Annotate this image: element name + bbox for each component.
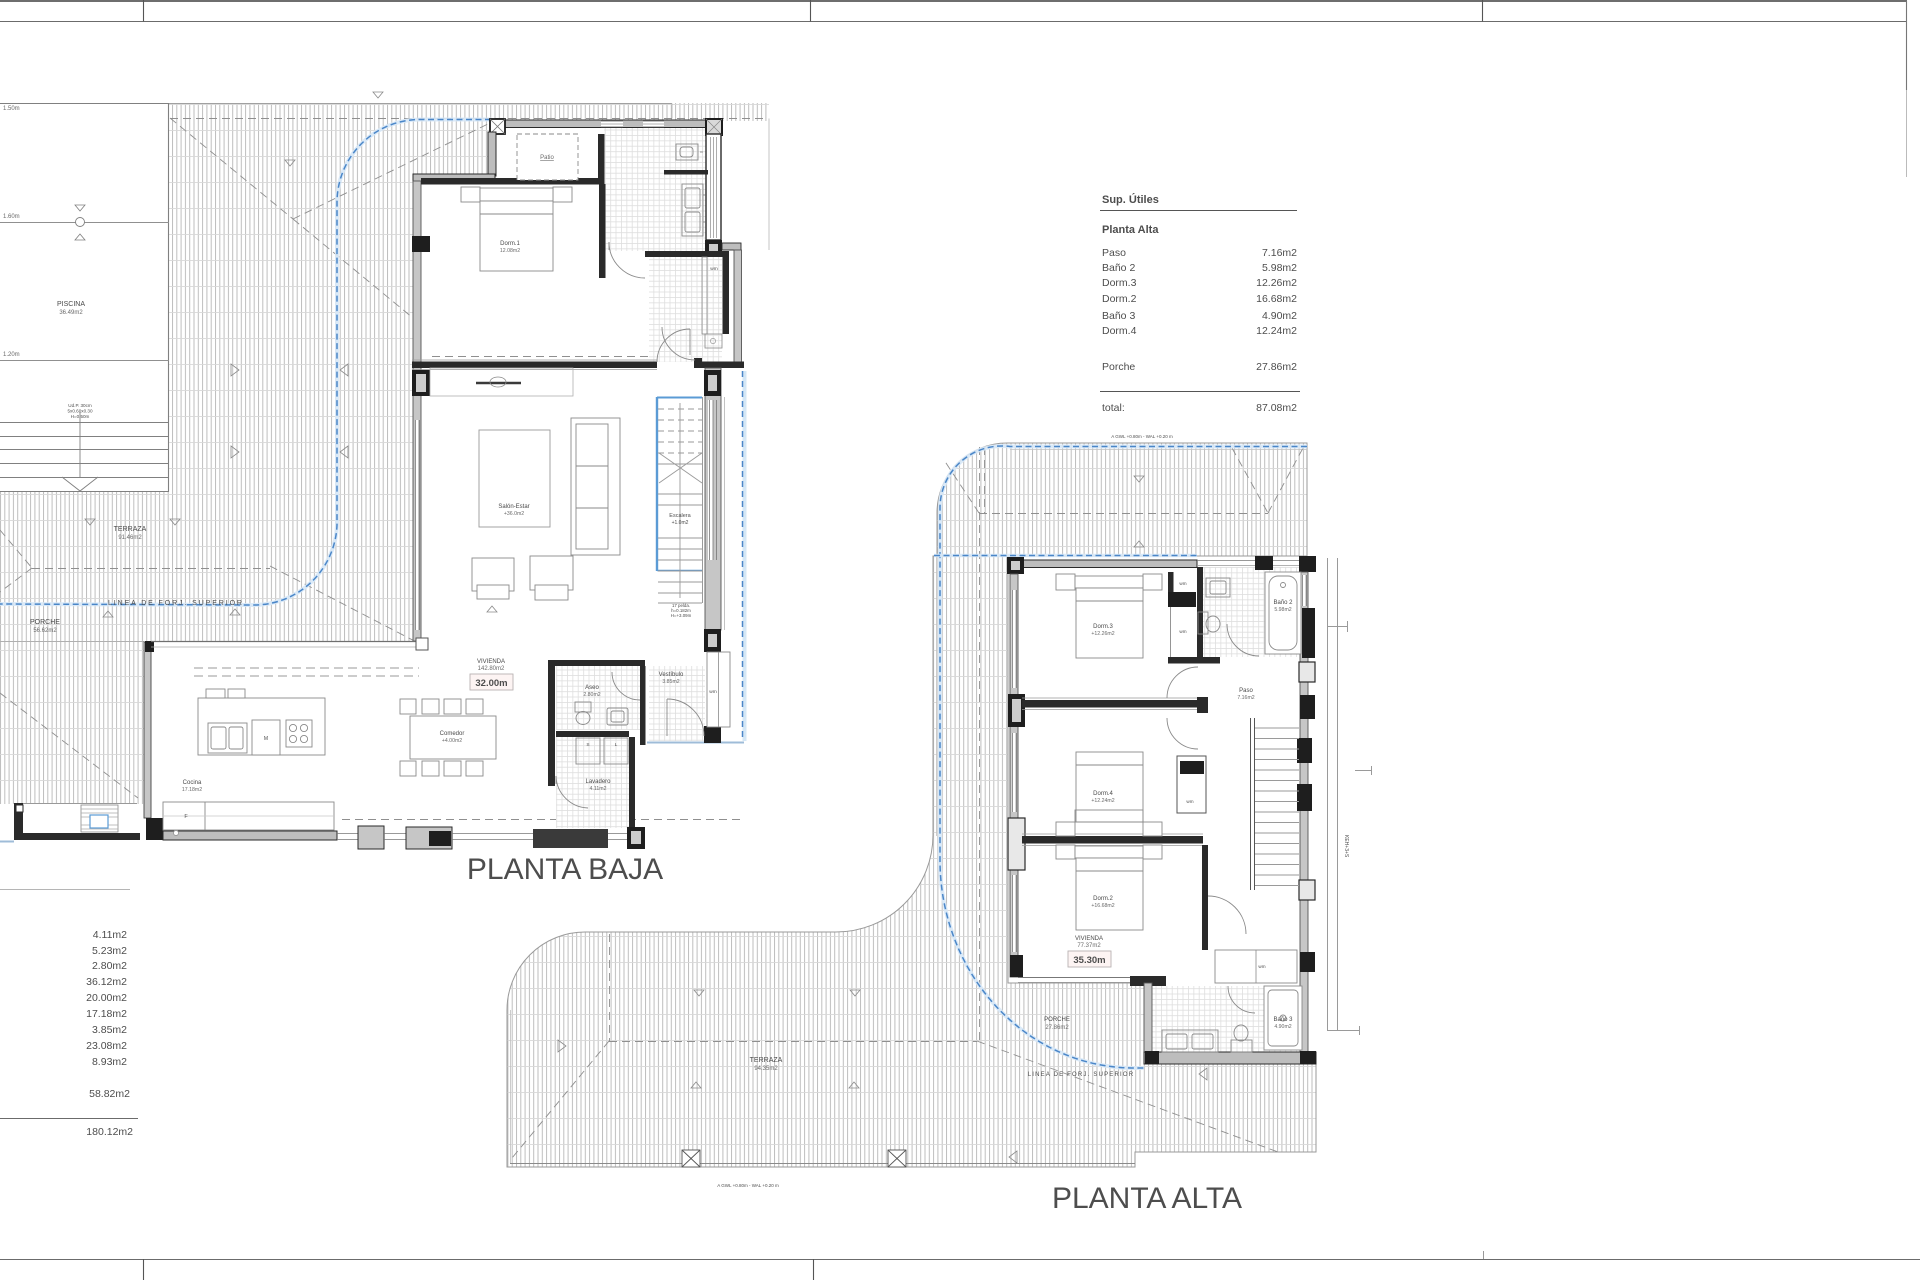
svg-text:17.18m2: 17.18m2 <box>182 787 202 793</box>
svg-text:+4.00m2: +4.00m2 <box>442 738 462 744</box>
svg-text:27.86m2: 27.86m2 <box>1256 361 1297 373</box>
svg-text:+12.26m2: +12.26m2 <box>1091 631 1114 637</box>
svg-text:12.26m2: 12.26m2 <box>1256 277 1297 289</box>
svg-text:3.85m2: 3.85m2 <box>662 679 679 685</box>
svg-text:1.60m: 1.60m <box>3 214 20 220</box>
svg-text:5x0.60x0.30: 5x0.60x0.30 <box>67 409 92 414</box>
svg-text:wm: wm <box>1179 581 1186 586</box>
svg-text:Dorm.3: Dorm.3 <box>1102 277 1137 289</box>
svg-text:35.30m: 35.30m <box>1073 955 1105 966</box>
svg-text:180.12m2: 180.12m2 <box>86 1126 133 1138</box>
svg-text:Lavadero: Lavadero <box>585 779 611 785</box>
svg-text:17.18m2: 17.18m2 <box>86 1008 127 1020</box>
svg-text:VIVIENDA: VIVIENDA <box>477 659 505 665</box>
svg-text:Dorm.4: Dorm.4 <box>1102 325 1137 337</box>
svg-text:Dorm.2: Dorm.2 <box>1102 293 1137 305</box>
svg-text:H=+3.09m: H=+3.09m <box>671 613 692 618</box>
svg-text:PISCINA: PISCINA <box>57 301 85 308</box>
svg-text:Sup. Útiles: Sup. Útiles <box>1102 193 1159 206</box>
svg-text:4.90m2: 4.90m2 <box>1262 310 1297 322</box>
svg-text:77.37m2: 77.37m2 <box>1077 943 1101 949</box>
svg-text:Baño 2: Baño 2 <box>1102 262 1135 274</box>
svg-text:wm: wm <box>710 267 717 272</box>
svg-text:20.00m2: 20.00m2 <box>86 992 127 1004</box>
svg-text:Cocina: Cocina <box>183 780 202 786</box>
svg-text:94.35m2: 94.35m2 <box>754 1066 778 1072</box>
svg-text:A GWL +0.80m - WAL +0.20 m: A GWL +0.80m - WAL +0.20 m <box>717 1183 779 1188</box>
svg-text:7.16m2: 7.16m2 <box>1262 247 1297 259</box>
svg-text:36.12m2: 36.12m2 <box>86 976 127 988</box>
svg-text:Dorm.3: Dorm.3 <box>1093 624 1113 630</box>
svg-text:7.16m2: 7.16m2 <box>1237 695 1254 701</box>
svg-text:wm: wm <box>709 690 716 695</box>
svg-text:Patio: Patio <box>540 155 554 161</box>
svg-text:Baño 3: Baño 3 <box>1102 310 1135 322</box>
svg-text:LINEA DE FORJ. SUPERIOR: LINEA DE FORJ. SUPERIOR <box>108 600 244 607</box>
svg-text:VIVIENDA: VIVIENDA <box>1075 936 1103 942</box>
svg-text:5.98m2: 5.98m2 <box>1274 607 1291 613</box>
svg-text:Paso: Paso <box>1239 688 1253 694</box>
svg-text:Planta Alta: Planta Alta <box>1102 224 1159 236</box>
svg-text:1.50m: 1.50m <box>3 106 20 112</box>
svg-text:Vestíbulo: Vestíbulo <box>659 672 684 678</box>
svg-text:8.93m2: 8.93m2 <box>92 1056 127 1068</box>
svg-text:Comedor: Comedor <box>440 731 465 737</box>
svg-text:36.49m2: 36.49m2 <box>59 310 83 316</box>
svg-text:S: S <box>586 742 589 748</box>
svg-text:32.00m: 32.00m <box>475 678 507 689</box>
svg-text:Dorm.2: Dorm.2 <box>1093 896 1113 902</box>
svg-text:A GWL +0.80m - WAL +0.20 m: A GWL +0.80m - WAL +0.20 m <box>1111 434 1173 439</box>
svg-text:PLANTA ALTA: PLANTA ALTA <box>1052 1182 1242 1215</box>
svg-text:Escalera: Escalera <box>669 513 691 519</box>
svg-text:+36.0m2: +36.0m2 <box>504 511 524 517</box>
svg-text:2.80m2: 2.80m2 <box>92 960 127 972</box>
svg-text:TERRAZA: TERRAZA <box>114 526 147 533</box>
svg-text:+12.24m2: +12.24m2 <box>1091 798 1114 804</box>
svg-text:12.24m2: 12.24m2 <box>1256 325 1297 337</box>
svg-text:87.08m2: 87.08m2 <box>1256 402 1297 414</box>
svg-text:LINEA DE FORJ. SUPERIOR: LINEA DE FORJ. SUPERIOR <box>1028 1072 1135 1078</box>
svg-text:1.20m: 1.20m <box>3 352 20 358</box>
svg-text:PORCHE: PORCHE <box>30 619 60 626</box>
svg-text:12.08m2: 12.08m2 <box>500 248 520 254</box>
svg-text:56.62m2: 56.62m2 <box>33 628 57 634</box>
svg-text:142.80m2: 142.80m2 <box>478 666 505 672</box>
svg-text:4.11m2: 4.11m2 <box>590 786 607 792</box>
svg-text:Aseo: Aseo <box>585 685 599 691</box>
svg-text:58.82m2: 58.82m2 <box>89 1088 130 1100</box>
svg-text:91.46m2: 91.46m2 <box>118 535 142 541</box>
svg-text:23.08m2: 23.08m2 <box>86 1040 127 1052</box>
svg-text:2.80m2: 2.80m2 <box>583 692 600 698</box>
svg-text:5.23m2: 5.23m2 <box>92 945 127 957</box>
svg-text:27.86m2: 27.86m2 <box>1045 1025 1069 1031</box>
svg-text:+16.68m2: +16.68m2 <box>1091 903 1114 909</box>
svg-text:Ud.P. 30cm: Ud.P. 30cm <box>68 403 92 408</box>
svg-text:wm: wm <box>1186 799 1193 804</box>
svg-text:Baño 3: Baño 3 <box>1273 1017 1293 1023</box>
svg-text:TERRAZA: TERRAZA <box>750 1057 783 1064</box>
svg-text:L: L <box>615 742 618 748</box>
svg-text:Salón-Estar: Salón-Estar <box>498 504 529 510</box>
svg-text:Dorm.4: Dorm.4 <box>1093 791 1113 797</box>
svg-text:5.98m2: 5.98m2 <box>1262 262 1297 274</box>
svg-text:Dorm.1: Dorm.1 <box>500 241 520 247</box>
svg-text:total:: total: <box>1102 402 1125 414</box>
svg-text:Paso: Paso <box>1102 247 1126 259</box>
svg-text:PLANTA BAJA: PLANTA BAJA <box>467 853 663 886</box>
svg-text:PORCHE: PORCHE <box>1044 1017 1070 1023</box>
svg-text:H=0.50m: H=0.50m <box>71 414 90 419</box>
svg-text:4.11m2: 4.11m2 <box>93 929 127 941</box>
svg-text:M: M <box>264 736 268 742</box>
svg-text:Baño 2: Baño 2 <box>1273 600 1293 606</box>
svg-text:wm: wm <box>1179 629 1186 634</box>
svg-text:16.68m2: 16.68m2 <box>1256 293 1297 305</box>
svg-text:4.90m2: 4.90m2 <box>1274 1024 1291 1030</box>
svg-text:Porche: Porche <box>1102 361 1135 373</box>
svg-text:wm: wm <box>1258 964 1265 969</box>
svg-text:KEH+3+S: KEH+3+S <box>1343 835 1349 858</box>
svg-text:3.85m2: 3.85m2 <box>92 1024 127 1036</box>
svg-text:+1.0m2: +1.0m2 <box>672 520 689 526</box>
